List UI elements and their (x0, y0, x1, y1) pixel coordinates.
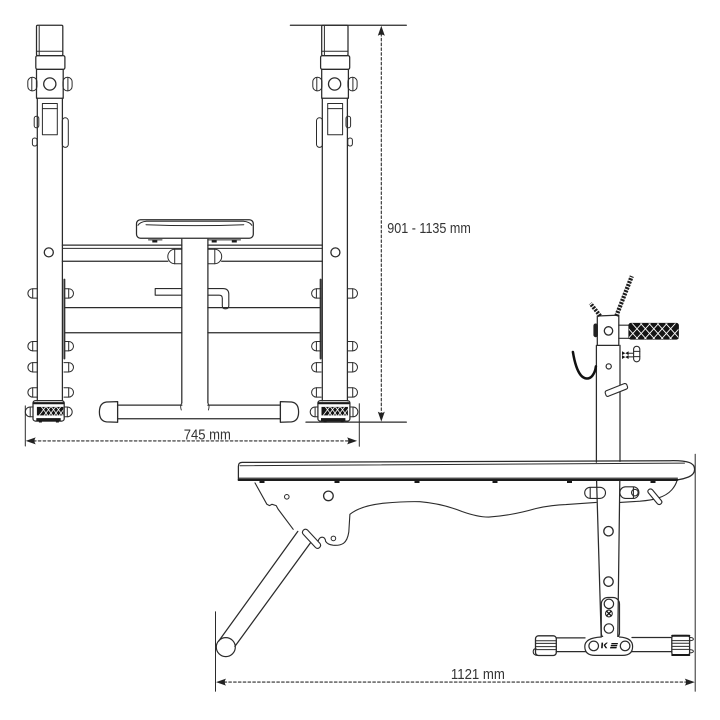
svg-text:1121 mm: 1121 mm (451, 667, 505, 683)
svg-text:745 mm: 745 mm (184, 428, 231, 444)
svg-text:901 - 1135 mm: 901 - 1135 mm (387, 221, 471, 237)
